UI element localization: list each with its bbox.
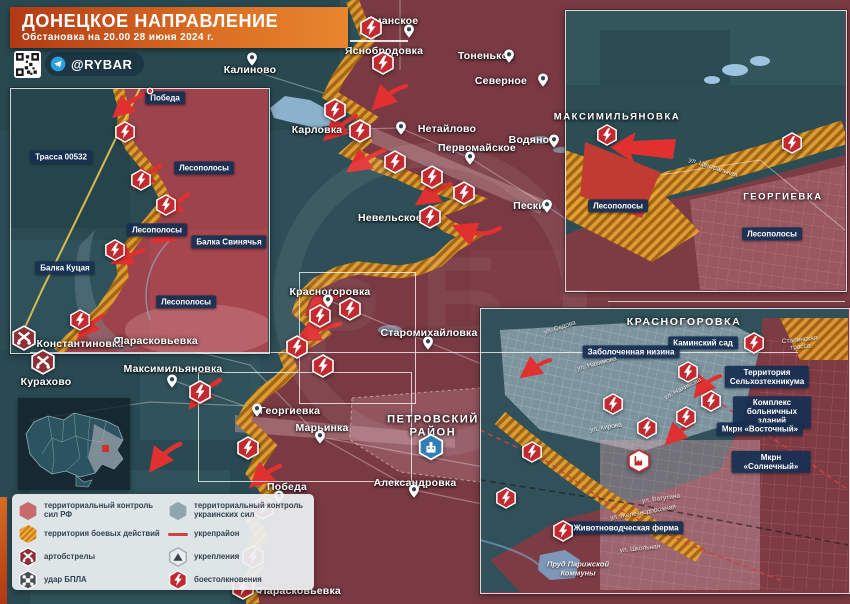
legend-item: боестолкновения: [168, 570, 314, 590]
legend-item: удар БПЛА: [18, 570, 168, 590]
map-label: ул. Нахимова: [576, 355, 617, 373]
location-pin: [409, 485, 419, 498]
rf-territory-swatch: [18, 501, 38, 521]
clash-icon: [188, 380, 212, 404]
location-pin: [423, 337, 433, 350]
map-label: Яснобродовка: [345, 45, 423, 57]
map-label: ул. Школьная: [619, 543, 660, 555]
location-pin: [542, 200, 552, 213]
location-pin: [315, 431, 325, 444]
map-label: Тоненькое: [458, 50, 514, 62]
legend-label: территория боевых действий: [44, 530, 160, 539]
clash-icon: [602, 393, 624, 415]
map-label: Пески: [513, 200, 545, 212]
location-pin: [247, 53, 257, 66]
battle-territory-swatch: [18, 524, 38, 544]
qr-code: [14, 51, 41, 78]
clash-icon: [452, 181, 476, 205]
location-pin: [504, 50, 514, 63]
map-label: ул. Ватутина: [641, 493, 680, 506]
legend-item: укрепления: [168, 547, 314, 567]
map-label: Мкрн «Солнечный»: [732, 451, 811, 473]
map-label: Калиново: [224, 64, 277, 76]
clash-icon: [359, 16, 383, 40]
location-pin: [538, 74, 548, 87]
legend-item: территориальный контроль сил РФ: [18, 501, 168, 521]
brand-bar: @RYBAR: [45, 52, 144, 76]
clash-icon: [114, 121, 136, 143]
map-label: Лесополосы: [174, 161, 234, 174]
settlement-dot-red: [146, 87, 155, 96]
map-label: Комплекс больничных зданий: [733, 396, 811, 428]
map-label: Лесополосы: [742, 227, 802, 240]
clash-icon: [675, 406, 697, 428]
page-subtitle: Обстановка на 20.00 28 июня 2024 г.: [22, 32, 336, 43]
location-pin: [549, 135, 559, 148]
drone-strike-icon: [18, 570, 38, 590]
map-label: Уманское: [368, 15, 419, 27]
map-label: Балка Куцая: [35, 261, 94, 274]
legend-item: территориальный контроль украинских сил: [168, 501, 314, 521]
map-label: ул. Центральная: [688, 157, 738, 180]
map-label: Лесополосы: [588, 199, 648, 212]
clash-icon: [311, 354, 335, 378]
map-label: Лесополосы: [127, 223, 187, 236]
clash-icon: [323, 98, 347, 122]
legend-label: укрепления: [194, 553, 239, 562]
clash-icon: [348, 119, 372, 143]
map-label: ул. Железнодорожная: [609, 504, 676, 523]
map-label: КРАСНОГОРОВКА: [627, 316, 742, 328]
legend-panel: территориальный контроль сил РФтерритори…: [12, 494, 314, 590]
map-label: Старомихайловка: [380, 327, 477, 339]
map-label: Животноводческая ферма: [568, 521, 683, 534]
map-label: Мкрн «Восточный»: [717, 422, 803, 435]
clash-icon: [168, 570, 188, 590]
location-pin: [167, 375, 177, 388]
settlement-dot: [113, 336, 121, 344]
clash-icon: [677, 361, 699, 383]
map-label: ул. Седова: [543, 319, 577, 336]
map-label: Балка Свинячья: [191, 235, 266, 248]
map-canvas: Р Б: [0, 0, 850, 604]
map-label: Победа: [267, 481, 307, 493]
map-label: Трасса 00532: [30, 150, 92, 163]
artillery-icon: [11, 325, 37, 351]
clash-icon: [69, 309, 91, 331]
map-label: Первомайское: [438, 142, 516, 154]
clash-icon: [596, 124, 618, 146]
legend-label: удар БПЛА: [44, 576, 87, 585]
legend-label: территориальный контроль украинских сил: [194, 502, 314, 520]
clash-icon: [495, 487, 517, 509]
district-icon: [418, 434, 445, 461]
legend-item: артобстрелы: [18, 547, 168, 567]
legend-label: укрепрайон: [194, 530, 239, 539]
map-label: Победа: [145, 91, 185, 104]
clash-icon: [743, 332, 765, 354]
telegram-icon: [50, 56, 66, 72]
map-label: Карловка: [292, 124, 343, 136]
clash-icon: [130, 169, 152, 191]
map-label: Заболоченная низина: [583, 345, 680, 358]
legend-label: артобстрелы: [44, 553, 95, 562]
clash-icon: [418, 205, 442, 229]
map-label: ул. Нахимова: [663, 376, 703, 402]
factory-icon: [627, 449, 651, 473]
location-pin: [323, 295, 333, 308]
clash-icon: [521, 441, 543, 463]
clash-icon: [104, 239, 126, 261]
map-label: Парасковьевка: [116, 335, 198, 347]
legend-column-left: территориальный контроль сил РФтерритори…: [18, 501, 168, 590]
fortified-line-swatch: [168, 524, 188, 544]
clash-icon: [155, 194, 177, 216]
map-label: Пруд Парижской Коммуны: [547, 560, 609, 577]
page-title: ДОНЕЦКОЕ НАПРАВЛЕНИЕ: [22, 12, 336, 30]
map-label: Сталинская трасса: [774, 334, 825, 354]
map-label: Территория Сельхозтехникума: [725, 366, 809, 388]
map-label: Александровка: [374, 477, 457, 489]
map-label: ПЕТРОВСКИЙ РАЙОН: [387, 413, 479, 438]
map-label: ГЕОРГИЕВКА: [743, 193, 823, 204]
fortification-icon: [168, 547, 188, 567]
map-label: Каминский сад: [668, 336, 738, 349]
ua-territory-swatch: [168, 501, 188, 521]
map-label: Курахово: [21, 376, 72, 388]
clash-icon: [636, 417, 658, 439]
map-label: Красногоровка: [290, 286, 371, 298]
map-label: Лесополосы: [156, 295, 216, 308]
map-label: ул. Кирова: [590, 422, 623, 435]
map-label: МАКСИМИЛЬЯНОВКА: [554, 113, 681, 124]
clash-icon: [371, 51, 395, 75]
map-label: Невельское: [358, 212, 422, 224]
clash-icon: [308, 304, 332, 328]
clash-icon: [552, 520, 574, 542]
clash-icon: [236, 436, 260, 460]
banner-underline: [350, 40, 408, 42]
legend-label: боестолкновения: [194, 576, 262, 585]
location-pin: [396, 122, 406, 135]
clash-icon: [700, 390, 722, 412]
map-label: Северное: [475, 75, 527, 87]
map-label: Нетайлово: [418, 123, 476, 135]
clash-icon: [285, 335, 309, 359]
edge-accent-bar: [0, 497, 7, 604]
location-pin: [404, 25, 414, 38]
clash-icon: [383, 150, 407, 174]
legend-item: укрепрайон: [168, 524, 314, 544]
title-banner: ДОНЕЦКОЕ НАПРАВЛЕНИЕ Обстановка на 20.00…: [10, 7, 348, 48]
artillery-icon: [18, 547, 38, 567]
location-pin: [252, 404, 262, 417]
legend-item: территория боевых действий: [18, 524, 168, 544]
legend-label: территориальный контроль сил РФ: [44, 502, 168, 520]
brand-handle: @RYBAR: [71, 57, 132, 72]
map-label: Водяное: [509, 134, 556, 146]
legend-column-right: территориальный контроль украинских силу…: [168, 501, 314, 590]
map-label: Максимильяновка: [124, 363, 223, 375]
clash-icon: [338, 297, 362, 321]
location-pin: [465, 152, 475, 165]
clash-icon: [781, 132, 803, 154]
clash-icon: [420, 165, 444, 189]
map-label: Константиновка: [36, 338, 123, 350]
artillery-icon: [30, 349, 56, 375]
map-label: Георгиевка: [260, 405, 320, 417]
map-label: Марьинка: [295, 422, 348, 434]
